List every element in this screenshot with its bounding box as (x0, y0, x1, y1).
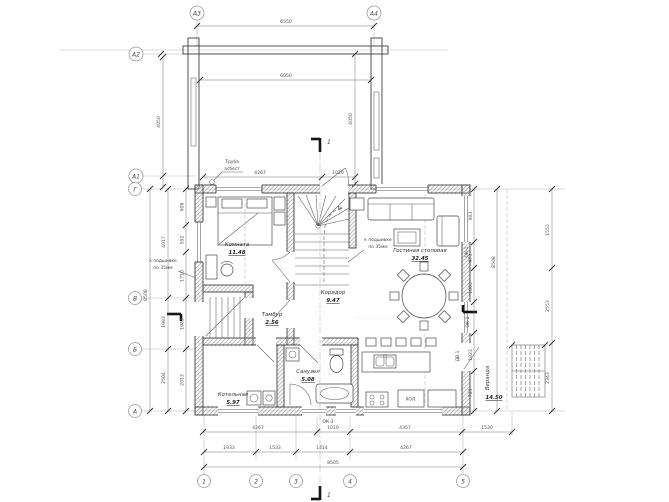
bathroom-name: Санузел (296, 369, 320, 375)
kitchen: ХОЛ. (362, 338, 456, 407)
dim-right-small-2: 973 (468, 254, 474, 263)
axis-label-b: Б (133, 347, 137, 354)
door-mark-dv1: ДВ-1 (455, 350, 461, 361)
living-area: 32.45 (411, 256, 428, 262)
asbestos-pipe (210, 180, 215, 185)
window-mark-ok2: ОК-2 (465, 316, 471, 327)
terrace-post-right (371, 38, 382, 189)
siding-note-left-l2: по 35мм (153, 265, 172, 271)
axis-label-5: 5 (461, 479, 465, 486)
dim-bottom-r2-1: 1933 (223, 445, 235, 451)
dim-bottom-r2-4b: 4267 (400, 445, 412, 451)
dim-terrace-right-h: 4050 (348, 113, 354, 125)
axis-label-a1: А1 (131, 174, 140, 181)
dim-bottom-r1-1: 4267 (252, 425, 264, 431)
boiler-name: Котельная (218, 392, 249, 398)
dim-bottom-r2-2: 1533 (269, 445, 281, 451)
dim-left-seg-2: 1983 (161, 316, 167, 328)
dim-right-seg-1: 1553 (545, 224, 551, 236)
axis-label-a: А (132, 409, 137, 416)
dims-bottom: 4267 1010 4357 1530 1933 1533 1414 1533 … (200, 425, 515, 470)
boiler-equipment (247, 391, 275, 405)
bedroom-name: Комната (225, 242, 249, 248)
bedroom-area: 11.48 (228, 250, 245, 256)
axis-label-3: 3 (294, 479, 298, 486)
vestibule-area: 2.56 (265, 320, 279, 326)
dim-right-overall: 8508 (491, 256, 497, 268)
corridor-name: Коридор (321, 290, 346, 296)
axis-label-1: 1 (202, 479, 206, 486)
axis-label-a4: А4 (369, 11, 378, 18)
dim-terrace-left-h: 4050 (156, 116, 162, 128)
corridor-area: 9.47 (326, 298, 340, 304)
kitchen-counter (428, 390, 456, 407)
dim-right-small-5: 1023 (468, 349, 474, 361)
chair (221, 264, 233, 276)
desk (206, 255, 217, 279)
siding-note-left-l1: к подшивке (149, 259, 177, 264)
dining-table (402, 274, 446, 318)
wardrobe (274, 197, 285, 210)
boiler-area: 5.97 (226, 400, 240, 406)
dim-left-small-1: 908 (180, 203, 186, 212)
section-label-top: 1 (327, 139, 331, 146)
axis-label-v: В (133, 296, 137, 303)
nightstand (206, 197, 216, 207)
toilet-tank (330, 349, 343, 355)
bathtub (316, 384, 353, 403)
terrace (183, 38, 388, 189)
dim-left-small-5: 2013 (180, 374, 186, 386)
boiler (247, 391, 261, 405)
veranda-deck (509, 342, 548, 397)
water-heater (263, 391, 275, 405)
stove (366, 392, 388, 407)
dim-left-seg-3: 2504 (161, 372, 167, 384)
dim-right-seg-3: 2343 (545, 372, 551, 384)
dim-right-small-6: 703 (468, 389, 474, 398)
floor-plan-svg: 6550 6050 4050 4050 А3 А4 А2 А1 Г В Б А … (0, 0, 669, 502)
shower-door-arc (290, 384, 311, 405)
dim-left-small-4: 1983 (180, 318, 186, 330)
dims-right: 903 973 1003 803 1023 703 8508 1553 2553… (468, 186, 555, 414)
entrance-steps (206, 297, 244, 338)
toilet (330, 356, 343, 373)
section-label-bottom: 1 (327, 492, 331, 499)
stairs (295, 195, 349, 285)
dim-terrace-outer: 6550 (280, 19, 292, 25)
terrace-post-left (188, 38, 199, 189)
living-name: Гостиная столовая (393, 248, 447, 254)
dims-left: 8508 4017 1983 2504 908 502 1710 1983 20… (143, 186, 189, 414)
bedroom-furniture (206, 197, 285, 283)
window-mark-ok3: ОК-3 (323, 419, 334, 425)
veranda-area: 14.50 (485, 395, 502, 401)
dim-top-1: 4267 (254, 170, 266, 176)
axis-label-2: 2 (254, 479, 258, 486)
fridge-label: ХОЛ. (405, 397, 416, 403)
axis-label-4: 4 (348, 479, 352, 486)
dim-bottom-r1-3: 4357 (399, 425, 411, 431)
pipe-note-line2: асбест (224, 165, 240, 172)
armchair (437, 216, 459, 246)
vestibule-name: Тамбур (262, 312, 283, 318)
dining-set (390, 262, 458, 330)
dim-top-2: 1010 (332, 170, 344, 176)
sofa (368, 198, 434, 220)
dim-right-seg-2: 2553 (545, 300, 551, 312)
washing-machine (286, 348, 299, 361)
axis-label-a3: А3 (192, 11, 201, 18)
floor-plan-drawing: 6550 6050 4050 4050 А3 А4 А2 А1 Г В Б А … (0, 0, 669, 502)
dim-bottom-r1-4: 1530 (481, 425, 493, 431)
dim-left-overall: 8508 (143, 289, 149, 301)
dim-terrace-inner: 6050 (280, 73, 292, 79)
dim-bottom-overall: 8505 (327, 460, 339, 466)
siding-note-right-l2: по 35мм (368, 244, 387, 250)
axis-label-a2: А2 (131, 52, 140, 59)
veranda-name: Веранда (485, 366, 491, 390)
dim-right-small-1: 903 (468, 212, 474, 221)
bathroom-fixtures (286, 348, 353, 405)
siding-note-right-l1: к подшивке (364, 238, 392, 243)
bathroom-area: 5.08 (301, 377, 315, 383)
pipe-note-line1: Труба (224, 158, 239, 165)
dim-bottom-r2-3: 1414 (316, 445, 328, 451)
room-labels: Комната 11.48 Гостиная столовая 32.45 Ко… (218, 242, 503, 406)
dim-bottom-r1-2: 1010 (327, 425, 339, 431)
dim-left-seg-1: 4017 (161, 236, 167, 248)
side-table (350, 198, 364, 210)
terrace-dimensions: 6550 6050 4050 4050 (156, 19, 377, 190)
dim-left-small-3: 1710 (180, 270, 186, 282)
dim-left-small-2: 502 (180, 236, 186, 245)
